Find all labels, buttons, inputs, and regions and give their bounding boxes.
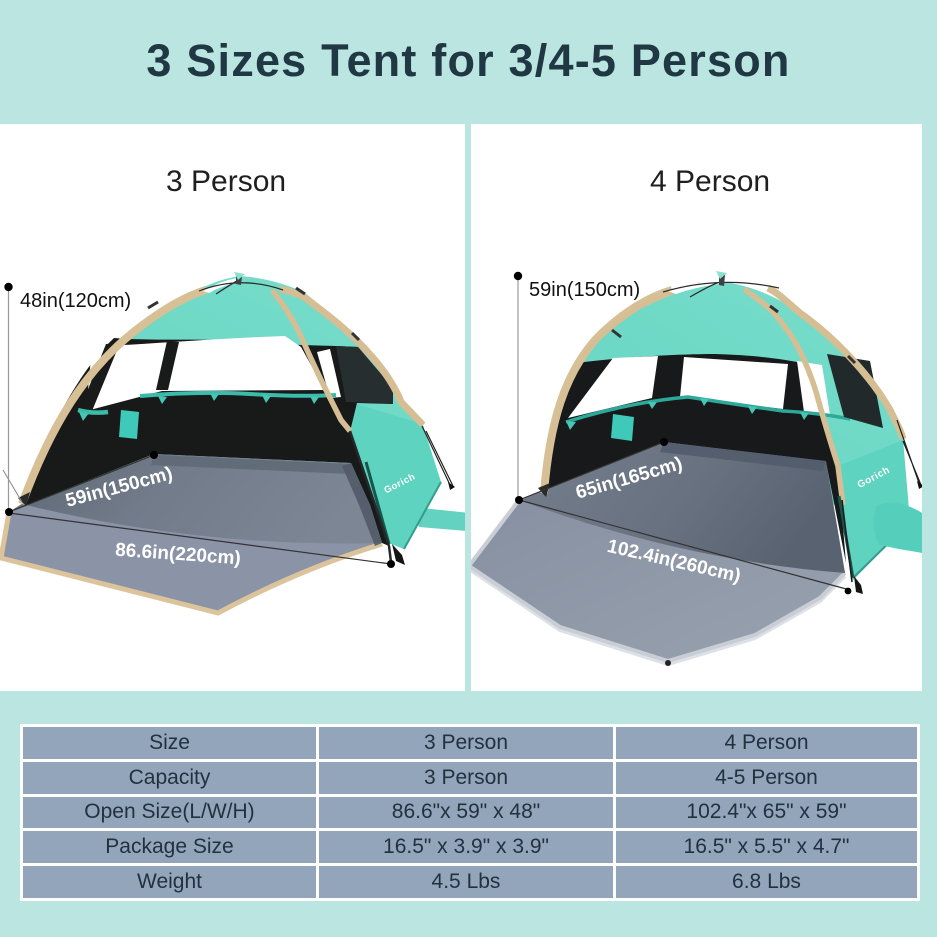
svg-text:59in(150cm): 59in(150cm) — [529, 279, 640, 301]
svg-text:48in(120cm): 48in(120cm) — [20, 290, 131, 312]
